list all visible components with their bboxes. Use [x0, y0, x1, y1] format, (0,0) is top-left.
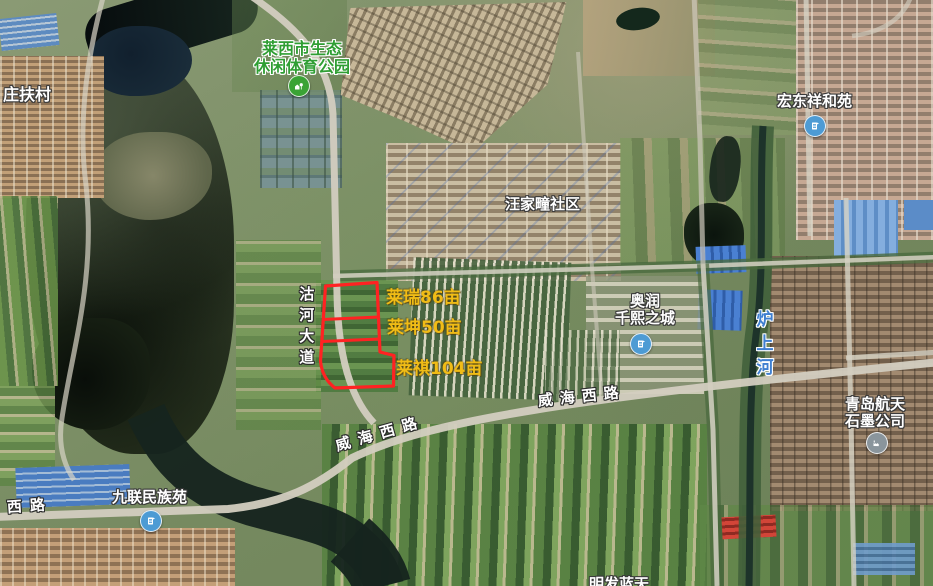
- parcel-outline[interactable]: [321, 283, 395, 389]
- label-zhuangfucun[interactable]: 庄扶村: [3, 86, 51, 104]
- label-bottom-partial[interactable]: 明发蓝天: [589, 576, 649, 586]
- label-graphite-line1: 青岛航天: [830, 396, 920, 413]
- label-aorun-line2: 千熙之城: [595, 310, 695, 327]
- label-graphite-company[interactable]: 青岛航天 石墨公司: [830, 396, 920, 431]
- hongdong-poi-icon[interactable]: [804, 115, 826, 137]
- parcel-label-laiqi: 莱祺104亩: [396, 360, 483, 380]
- label-hongdong[interactable]: 宏东祥和苑: [777, 93, 852, 110]
- jiulian-poi-icon[interactable]: [140, 510, 162, 532]
- label-park-line2: 休闲体育公园: [250, 58, 354, 76]
- label-park-line1: 莱西市生态: [250, 40, 354, 58]
- label-jiulian[interactable]: 九联民族苑: [112, 489, 187, 506]
- parcel-label-laikun: 莱坤50亩: [387, 319, 462, 339]
- label-graphite-line2: 石墨公司: [830, 413, 920, 430]
- aorun-poi-icon[interactable]: [630, 333, 652, 355]
- graphite-poi-icon[interactable]: [866, 432, 888, 454]
- label-guhe-dadao: 沽河大道: [297, 286, 314, 370]
- parcel-divider-2: [322, 339, 380, 342]
- label-wangjiatuan[interactable]: 汪家疃社区: [505, 196, 580, 213]
- label-lushang-river: 炉上河: [752, 310, 772, 382]
- park-poi-icon[interactable]: [288, 75, 310, 97]
- label-aorun-line1: 奥润: [595, 293, 695, 310]
- label-aorun[interactable]: 奥润 千熙之城: [595, 293, 695, 328]
- map-canvas[interactable]: 庄扶村 莱西市生态 休闲体育公园 宏东祥和苑 汪家疃社区 奥润 千熙之城 九联民…: [0, 0, 933, 586]
- label-park[interactable]: 莱西市生态 休闲体育公园: [250, 40, 354, 77]
- parcel-label-lairui: 莱瑞86亩: [386, 289, 461, 309]
- parcel-divider-1: [323, 317, 380, 320]
